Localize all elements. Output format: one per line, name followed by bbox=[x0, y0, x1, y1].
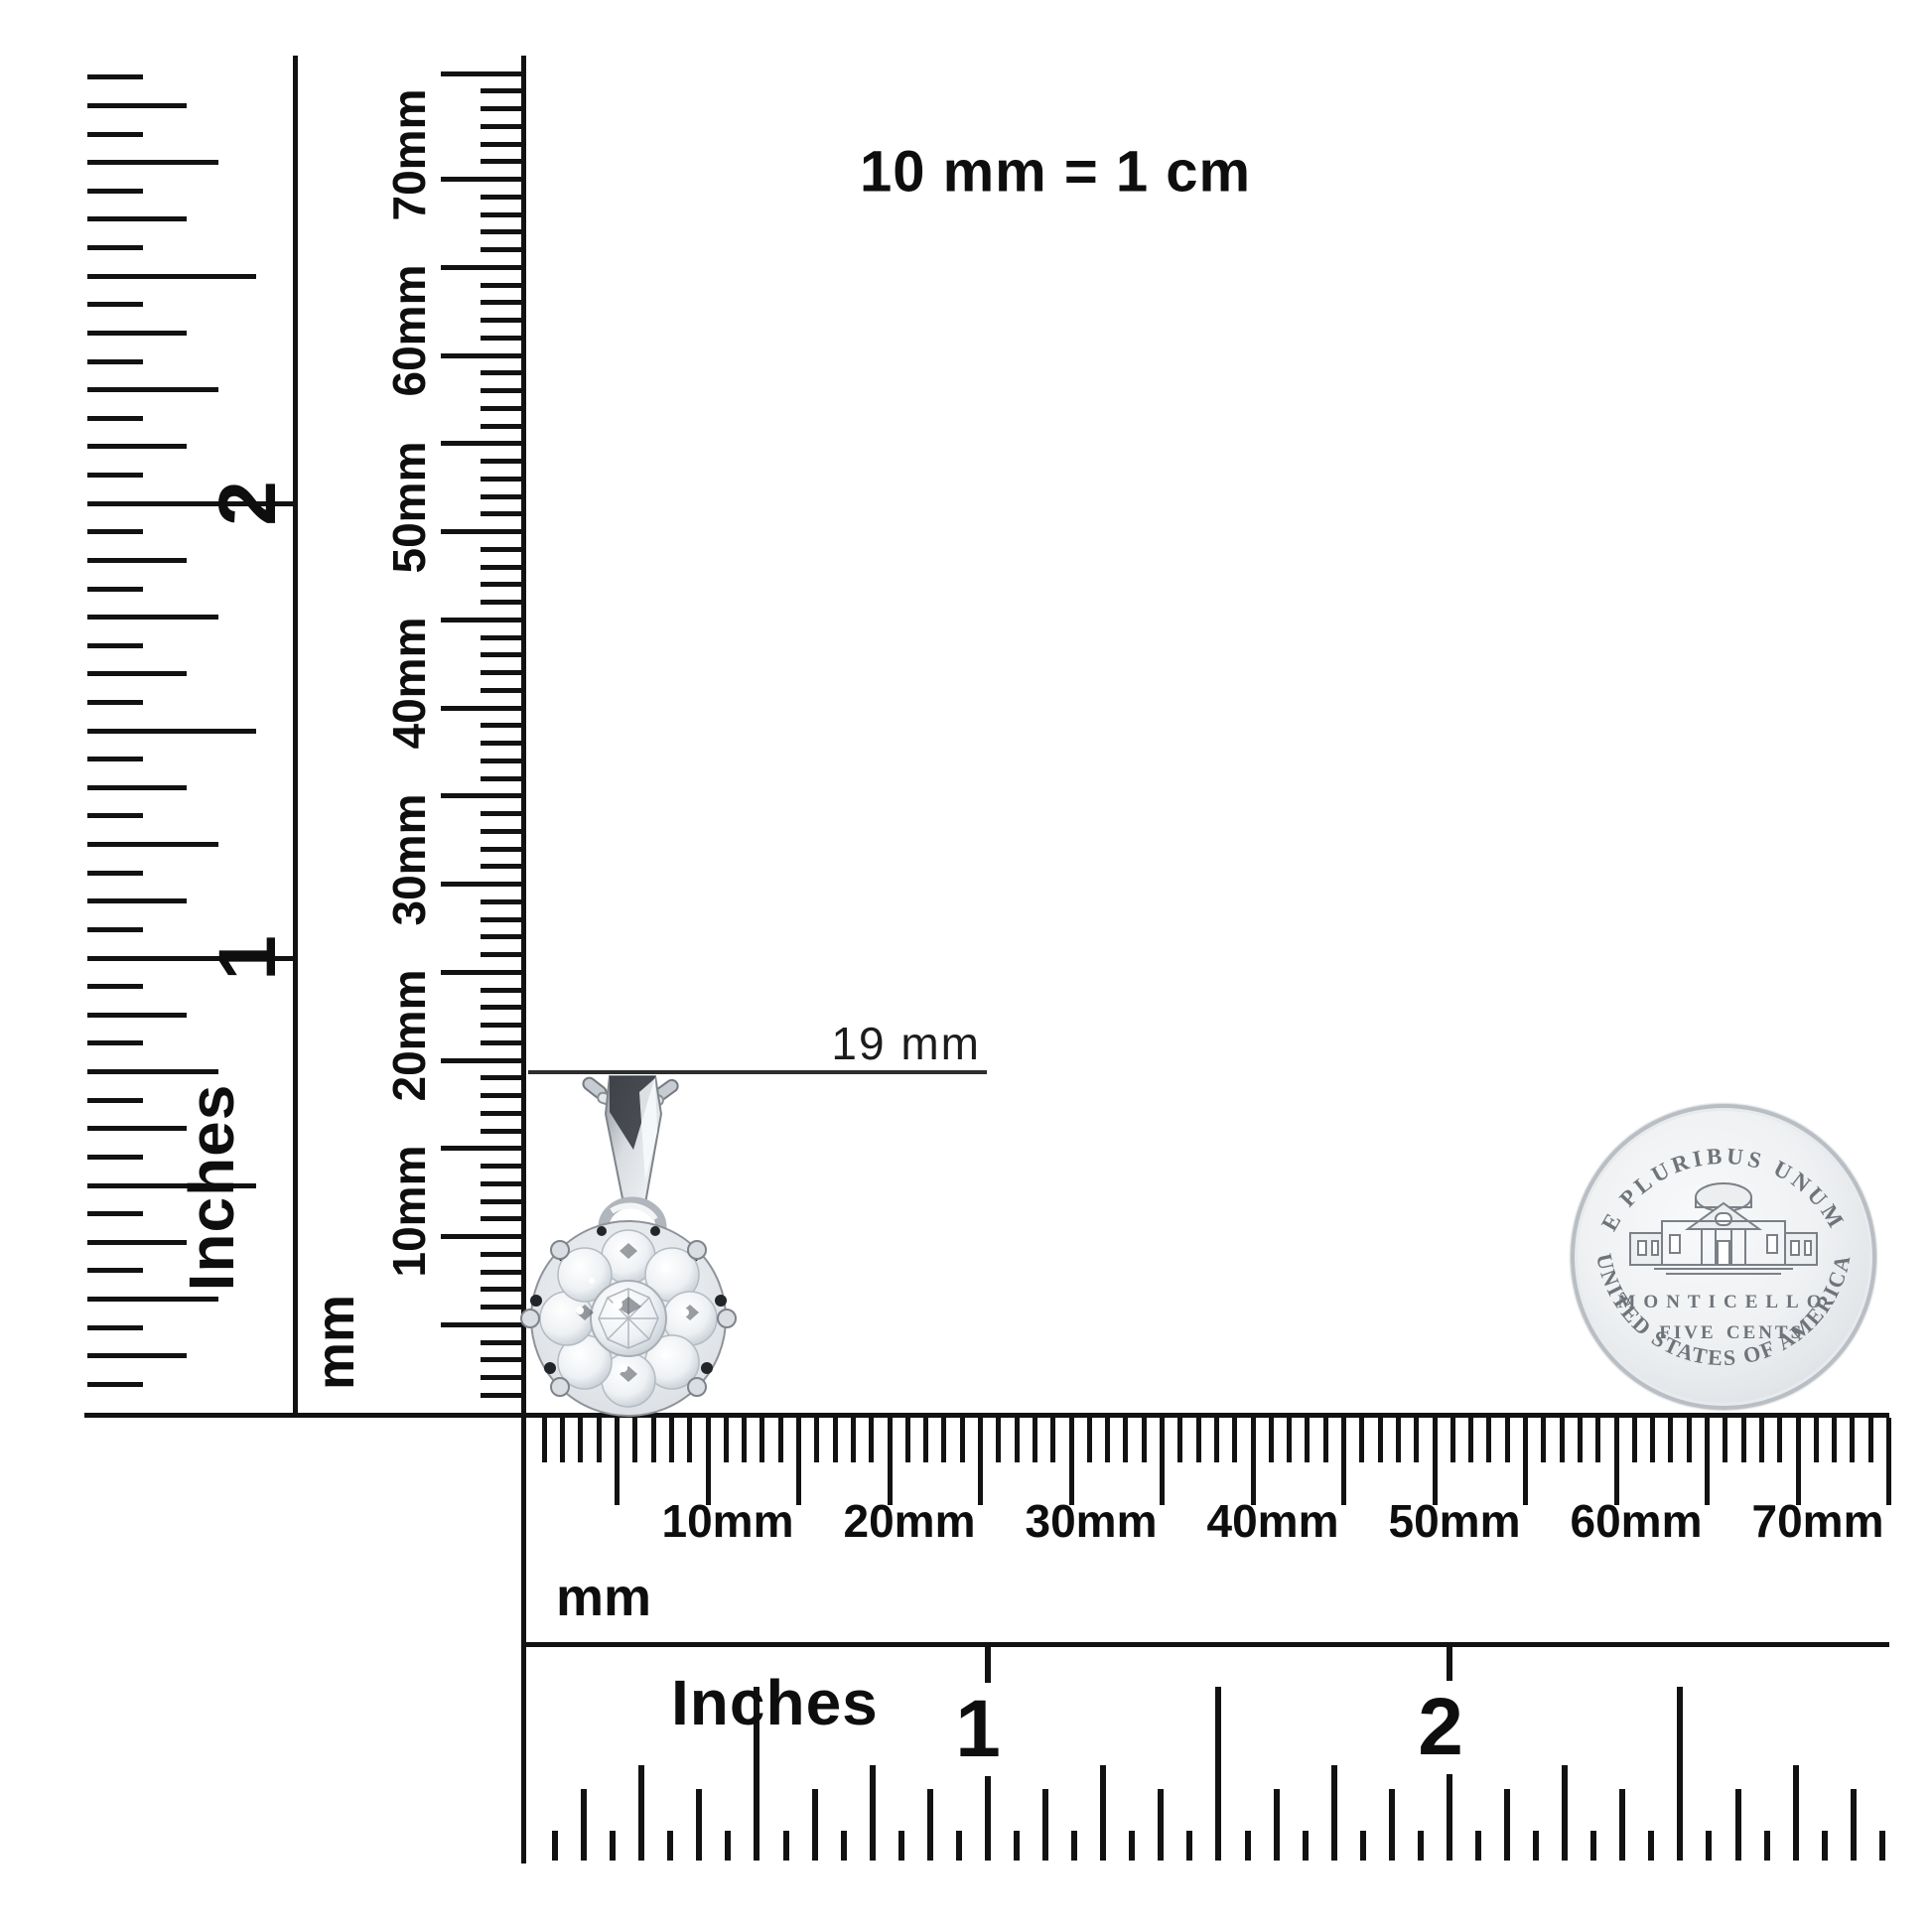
vertical-mm-label-70: 70mm bbox=[382, 89, 436, 221]
horizontal-inch-numeral-2: 2 bbox=[1414, 1681, 1467, 1774]
vertical-mm-label-60: 60mm bbox=[382, 265, 436, 397]
nickel-coin: E PLURIBUS UNUM MONTICELLO FIVE CENTS UN… bbox=[1571, 1104, 1876, 1410]
horizontal-mm-label-40: 40mm bbox=[1207, 1494, 1339, 1548]
measurement-diagram: 10 mm = 1 cm 1 2 Inches 10mm 20mm 30mm 4… bbox=[0, 0, 1932, 1932]
horizontal-mm-unit-label: mm bbox=[556, 1567, 651, 1628]
vertical-inch-ruler-spine bbox=[293, 56, 298, 1418]
horizontal-mm-label-10: 10mm bbox=[662, 1494, 794, 1548]
size-annotation-label: 19 mm bbox=[695, 1017, 981, 1070]
vertical-inch-unit-label: Inches bbox=[175, 1084, 248, 1292]
vertical-inch-numeral-1: 1 bbox=[202, 935, 295, 981]
vertical-mm-label-30: 30mm bbox=[382, 794, 436, 926]
vertical-mm-label-20: 20mm bbox=[382, 970, 436, 1102]
horizontal-mm-label-70: 70mm bbox=[1752, 1494, 1884, 1548]
horizontal-mm-label-30: 30mm bbox=[1026, 1494, 1158, 1548]
vertical-mm-label-10: 10mm bbox=[382, 1146, 436, 1278]
vertical-mm-ruler-spine bbox=[521, 56, 526, 1863]
horizontal-mm-label-20: 20mm bbox=[844, 1494, 976, 1548]
horizontal-inch-ruler-top-line bbox=[524, 1642, 1889, 1647]
horizontal-mm-label-60: 60mm bbox=[1571, 1494, 1703, 1548]
vertical-mm-label-40: 40mm bbox=[382, 618, 436, 750]
pendant-bail bbox=[606, 1076, 661, 1203]
horizontal-mm-label-50: 50mm bbox=[1389, 1494, 1521, 1548]
horizontal-inch-numeral-1: 1 bbox=[951, 1683, 1005, 1776]
vertical-mm-unit-label: mm bbox=[305, 1295, 366, 1390]
monticello-building bbox=[1630, 1183, 1817, 1274]
vertical-mm-label-50: 50mm bbox=[382, 442, 436, 574]
scale-note: 10 mm = 1 cm bbox=[860, 139, 1251, 206]
coin-building-label: MONTICELLO bbox=[1617, 1292, 1829, 1312]
horizontal-inch-unit-label: Inches bbox=[671, 1666, 879, 1739]
diamond-pendant-image bbox=[506, 1070, 755, 1420]
diamond-cluster bbox=[521, 1221, 736, 1416]
vertical-inch-numeral-2: 2 bbox=[202, 481, 295, 526]
